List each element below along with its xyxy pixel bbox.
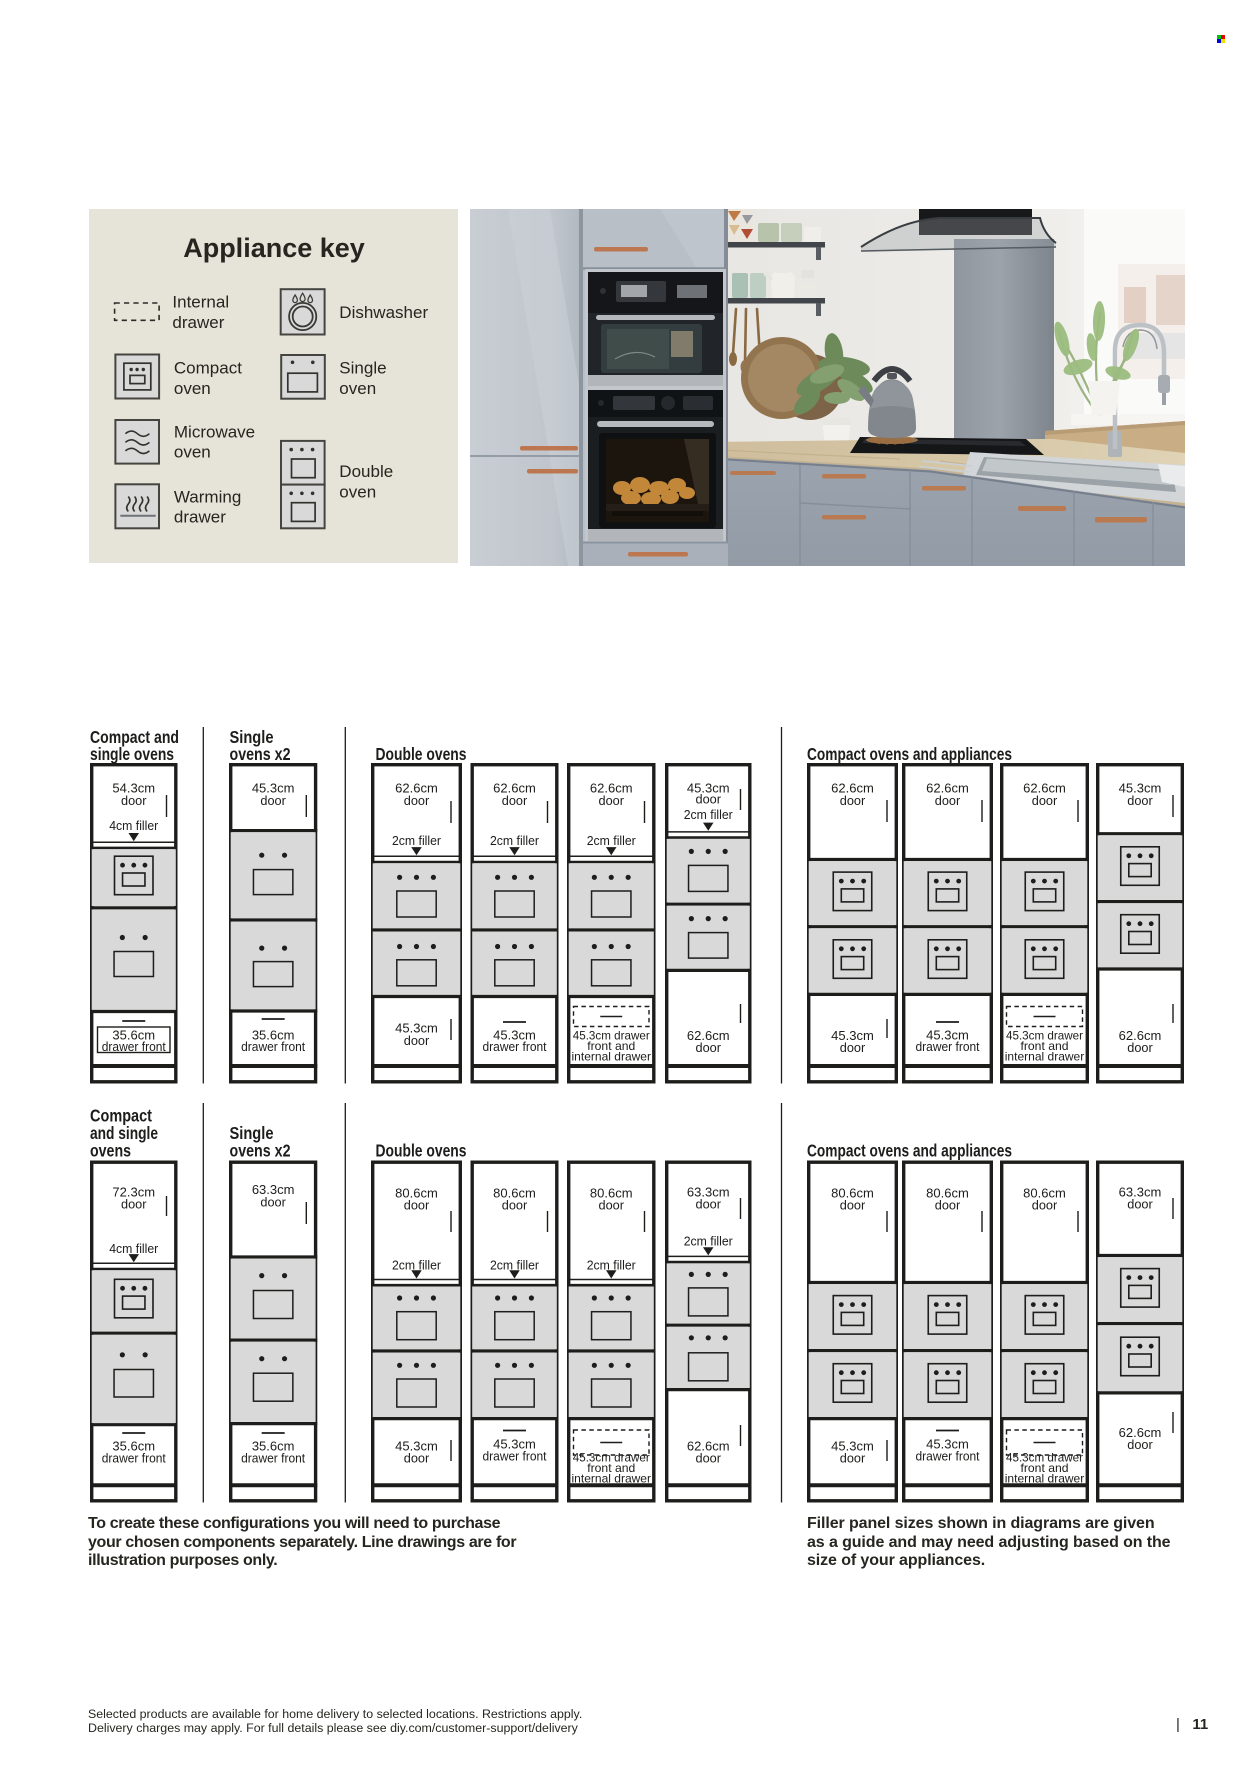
svg-text:door: door: [1127, 793, 1153, 808]
svg-text:drawer front: drawer front: [241, 1451, 305, 1466]
svg-text:door: door: [696, 1197, 722, 1212]
svg-text:drawer front: drawer front: [483, 1449, 547, 1464]
svg-text:door: door: [696, 1451, 722, 1466]
svg-text:door: door: [502, 793, 528, 808]
svg-text:internal drawer: internal drawer: [572, 1472, 652, 1486]
svg-text:2cm filler: 2cm filler: [392, 833, 442, 848]
svg-text:door: door: [260, 1195, 286, 1210]
svg-text:4cm filler: 4cm filler: [109, 818, 159, 833]
svg-text:door: door: [1127, 1040, 1153, 1055]
svg-text:door: door: [696, 1040, 722, 1055]
svg-text:drawer front: drawer front: [241, 1039, 305, 1054]
svg-text:Compact ovens and appliances: Compact ovens and appliances: [807, 744, 1012, 764]
svg-text:Compact ovens and appliances: Compact ovens and appliances: [807, 1141, 1012, 1161]
svg-text:door: door: [260, 793, 286, 808]
svg-text:ovens x2: ovens x2: [230, 1141, 291, 1161]
svg-text:drawer front: drawer front: [916, 1039, 980, 1054]
svg-text:door: door: [502, 1198, 528, 1213]
svg-text:ovens x2: ovens x2: [230, 744, 291, 764]
svg-text:drawer front: drawer front: [102, 1451, 166, 1466]
svg-text:Double ovens: Double ovens: [376, 1141, 467, 1161]
svg-text:2cm filler: 2cm filler: [587, 1257, 637, 1272]
svg-text:internal drawer: internal drawer: [1005, 1050, 1085, 1064]
svg-text:2cm filler: 2cm filler: [684, 807, 734, 822]
svg-text:door: door: [696, 792, 722, 807]
svg-text:drawer front: drawer front: [483, 1039, 547, 1054]
svg-text:door: door: [1032, 1198, 1058, 1213]
svg-text:door: door: [840, 1451, 866, 1466]
svg-text:drawer front: drawer front: [102, 1039, 166, 1054]
svg-text:2cm filler: 2cm filler: [684, 1234, 734, 1249]
svg-text:internal drawer: internal drawer: [1005, 1472, 1085, 1486]
svg-text:door: door: [121, 1197, 147, 1212]
svg-text:drawer front: drawer front: [916, 1449, 980, 1464]
svg-text:door: door: [404, 1033, 430, 1048]
svg-text:2cm filler: 2cm filler: [587, 833, 637, 848]
svg-text:door: door: [840, 1040, 866, 1055]
svg-text:Double ovens: Double ovens: [376, 744, 467, 764]
svg-text:single ovens: single ovens: [90, 744, 174, 764]
svg-text:door: door: [404, 1451, 430, 1466]
svg-text:door: door: [599, 793, 625, 808]
svg-text:door: door: [840, 793, 866, 808]
svg-text:2cm filler: 2cm filler: [490, 833, 540, 848]
svg-text:ovens: ovens: [90, 1141, 131, 1161]
svg-text:door: door: [935, 1198, 961, 1213]
svg-text:door: door: [840, 1198, 866, 1213]
svg-text:door: door: [1127, 1197, 1153, 1212]
svg-text:door: door: [404, 1198, 430, 1213]
svg-text:internal drawer: internal drawer: [572, 1050, 652, 1064]
svg-text:door: door: [1032, 793, 1058, 808]
svg-text:2cm filler: 2cm filler: [490, 1257, 540, 1272]
svg-text:2cm filler: 2cm filler: [392, 1257, 442, 1272]
svg-text:4cm filler: 4cm filler: [109, 1241, 159, 1256]
svg-text:door: door: [121, 793, 147, 808]
svg-text:door: door: [1127, 1437, 1153, 1452]
svg-text:door: door: [935, 793, 961, 808]
svg-text:door: door: [404, 793, 430, 808]
svg-text:door: door: [599, 1198, 625, 1213]
